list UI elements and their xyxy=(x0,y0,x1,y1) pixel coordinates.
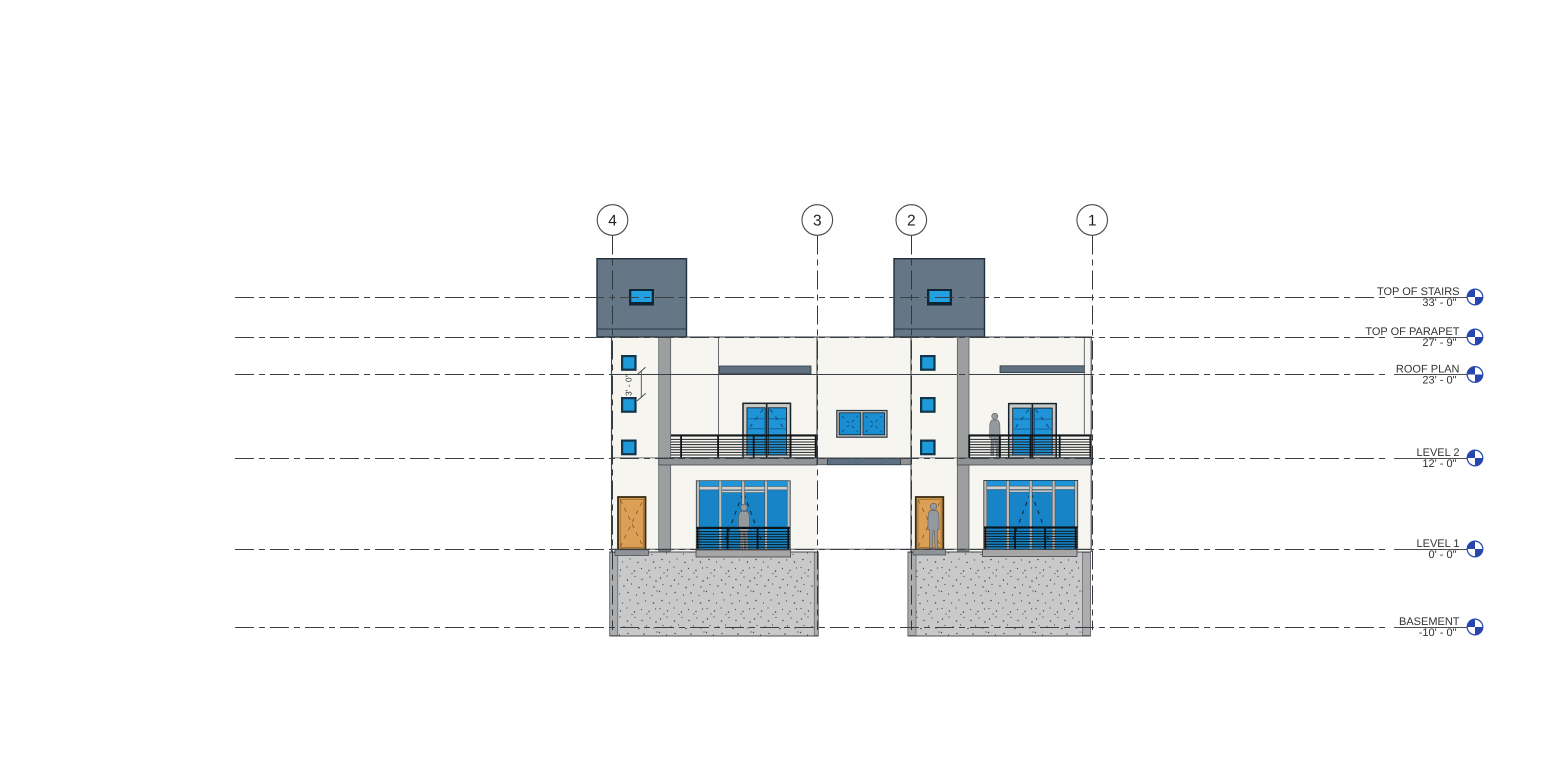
svg-text:1: 1 xyxy=(1088,213,1097,230)
svg-text:3: 3 xyxy=(813,213,822,230)
svg-text:-10' - 0": -10' - 0" xyxy=(1419,627,1457,639)
svg-text:12' - 0": 12' - 0" xyxy=(1422,458,1456,470)
svg-text:0' - 0": 0' - 0" xyxy=(1428,549,1456,561)
svg-text:33' - 0": 33' - 0" xyxy=(1422,297,1456,309)
svg-text:3' - 0": 3' - 0" xyxy=(624,374,634,396)
svg-text:2: 2 xyxy=(907,213,916,230)
svg-text:27' - 9": 27' - 9" xyxy=(1422,337,1456,349)
svg-text:23' - 0": 23' - 0" xyxy=(1422,375,1456,387)
svg-text:4: 4 xyxy=(608,213,617,230)
